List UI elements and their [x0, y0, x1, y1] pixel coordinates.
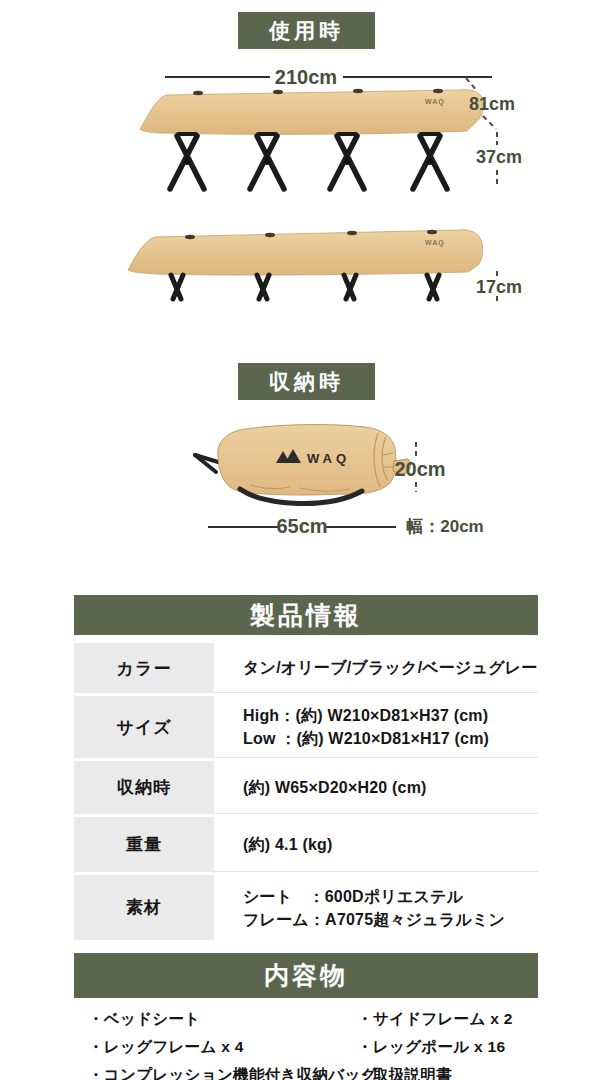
spec-value-line: High：(約) W210×D81×H37 (cm): [243, 704, 538, 727]
cot-low-fabric: [128, 230, 483, 275]
cot-high-figure: 210cm WAQ 81cm 37cm: [80, 58, 540, 208]
dimension-label-81cm: 81cm: [469, 94, 515, 114]
storage-bag-figure: WAQ 20cm 65cm 幅：20cm: [150, 415, 490, 545]
dimension-label-37cm: 37cm: [476, 147, 522, 167]
spec-label: サイズ: [74, 696, 214, 758]
webbing-clip: [427, 230, 437, 234]
spec-value: (約) W65×D20×H20 (cm): [214, 761, 538, 814]
dimension-label-210cm: 210cm: [275, 66, 337, 88]
dimension-label-17cm: 17cm: [476, 277, 522, 297]
section-badge-in-use: 使用時: [238, 12, 375, 49]
fabric-brand-text: WAQ: [425, 98, 445, 106]
webbing-clip: [433, 89, 443, 93]
contents-item: ・レッグポール x 16: [357, 1033, 513, 1061]
contents-item: ・取扱説明書: [357, 1061, 513, 1080]
section-badge-in-use-label: 使用時: [269, 17, 344, 45]
spec-value-line: タン/オリーブ/ブラック/ベージュグレー: [243, 656, 538, 679]
contents-column-left: ・ベッドシート ・レッグフレーム x 4 ・コンプレッション機能付き収納バッグ: [88, 1005, 377, 1080]
section-badge-storage: 収納時: [238, 363, 375, 400]
dimension-label-65cm: 65cm: [276, 515, 327, 537]
spec-row-packed-size: 収納時 (約) W65×D20×H20 (cm): [74, 761, 538, 814]
spec-row-weight: 重量 (約) 4.1 (kg): [74, 817, 538, 872]
spec-value: High：(約) W210×D81×H37 (cm) Low ：(約) W210…: [214, 696, 538, 758]
depth-measure-dash-top: [466, 78, 477, 91]
spec-value: シート ：600Dポリエステル フレーム：A7075超々ジュラルミン: [214, 875, 538, 940]
section-badge-storage-label: 収納時: [269, 368, 344, 396]
webbing-clip: [185, 235, 195, 239]
dimension-label-20cm: 20cm: [394, 458, 445, 480]
cot-high-legs: [170, 132, 447, 189]
contents-item: ・サイドフレーム x 2: [357, 1005, 513, 1033]
spec-label: 重量: [74, 817, 214, 872]
depth-measure-dash-bottom: [483, 116, 496, 129]
spec-label: 収納時: [74, 761, 214, 814]
dimension-label-width-20cm: 幅：20cm: [406, 517, 483, 536]
spec-row-size: サイズ High：(約) W210×D81×H37 (cm) Low ：(約) …: [74, 696, 538, 758]
cot-high-fabric: [140, 90, 483, 135]
product-info-table: 製品情報 カラー タン/オリーブ/ブラック/ベージュグレー サイズ High：(…: [74, 595, 538, 943]
spec-value-line: (約) 4.1 (kg): [243, 833, 538, 856]
contents-item: ・コンプレッション機能付き収納バッグ: [88, 1061, 377, 1080]
spec-value-line: シート ：600Dポリエステル: [243, 885, 538, 908]
spec-row-material: 素材 シート ：600Dポリエステル フレーム：A7075超々ジュラルミン: [74, 875, 538, 940]
webbing-clip: [193, 91, 203, 95]
webbing-clip: [353, 89, 363, 93]
bag-brand-text: WAQ: [307, 451, 350, 466]
bag-side-loop: [195, 455, 218, 472]
product-spec-page: 使用時 210cm WAQ: [0, 0, 613, 1080]
fabric-brand-text: WAQ: [425, 239, 445, 247]
product-info-title: 製品情報: [74, 595, 538, 635]
webbing-clip: [273, 90, 283, 94]
spec-value: タン/オリーブ/ブラック/ベージュグレー: [214, 643, 538, 693]
spec-label: カラー: [74, 643, 214, 693]
cot-low-legs: [171, 275, 439, 299]
contents-title-label: 内容物: [264, 959, 348, 992]
webbing-clip: [347, 231, 357, 235]
contents-column-right: ・サイドフレーム x 2 ・レッグポール x 16 ・取扱説明書: [357, 1005, 513, 1080]
contents-item: ・ベッドシート: [88, 1005, 377, 1033]
product-info-title-label: 製品情報: [250, 599, 362, 632]
spec-row-color: カラー タン/オリーブ/ブラック/ベージュグレー: [74, 643, 538, 693]
webbing-clip: [265, 233, 275, 237]
contents-title: 内容物: [74, 953, 538, 998]
contents-item: ・レッグフレーム x 4: [88, 1033, 377, 1061]
spec-label: 素材: [74, 875, 214, 940]
spec-value-line: フレーム：A7075超々ジュラルミン: [243, 908, 538, 931]
spec-value: (約) 4.1 (kg): [214, 817, 538, 872]
spec-value-line: (約) W65×D20×H20 (cm): [243, 776, 538, 799]
spec-value-line: Low ：(約) W210×D81×H17 (cm): [243, 727, 538, 750]
cot-low-figure: WAQ 17cm: [80, 215, 540, 310]
